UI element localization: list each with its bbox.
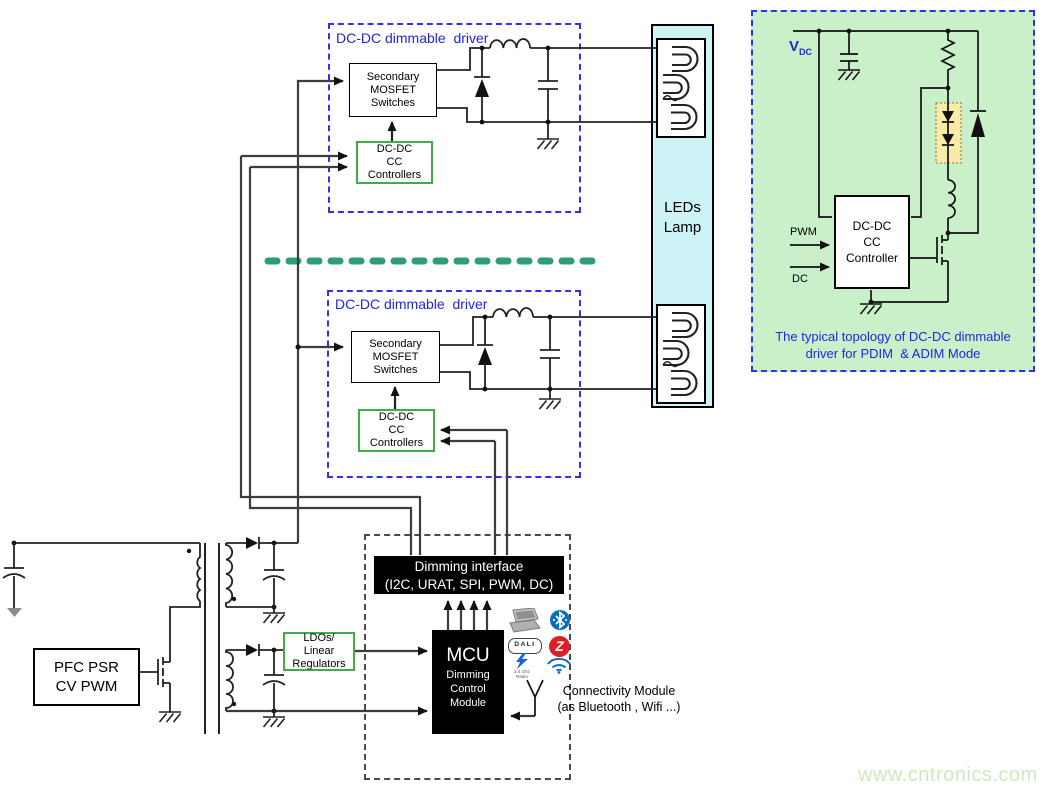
- panel-circuit: [790, 29, 986, 314]
- psu-circuit: [3, 537, 427, 734]
- led-string-graphics: [663, 47, 698, 395]
- driver1-circuit: [392, 39, 656, 149]
- control-wires: [241, 81, 535, 716]
- circuit-wiring-layer: [0, 0, 1048, 794]
- driver2-circuit: [395, 308, 656, 409]
- antenna-icon: [527, 680, 543, 716]
- diagram-canvas: DC-DC dimmable driver Secondary MOSFET S…: [0, 0, 1048, 794]
